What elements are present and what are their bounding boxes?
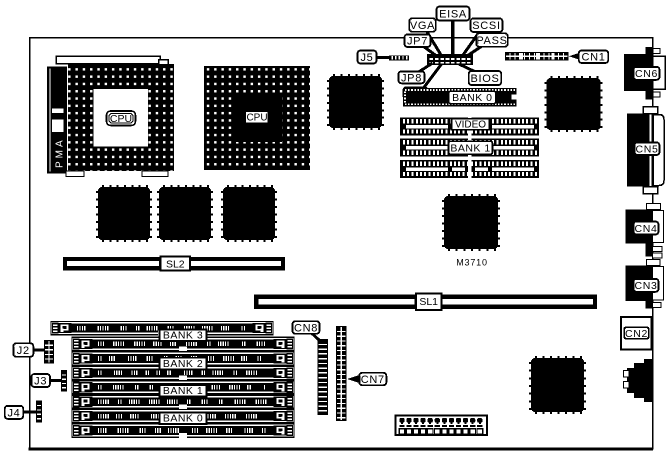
svg-text:VIDEO: VIDEO xyxy=(455,120,486,131)
svg-text:CN7: CN7 xyxy=(361,374,385,386)
svg-text:BANK 3: BANK 3 xyxy=(163,330,203,342)
svg-text:SCSI: SCSI xyxy=(472,20,500,32)
svg-text:BANK 0: BANK 0 xyxy=(452,92,492,104)
svg-text:BANK 2: BANK 2 xyxy=(163,358,203,370)
svg-text:CN6: CN6 xyxy=(635,68,658,80)
svg-text:SL1: SL1 xyxy=(419,296,438,308)
svg-text:PMA: PMA xyxy=(55,137,66,168)
svg-text:SL2: SL2 xyxy=(166,259,185,271)
svg-text:J3: J3 xyxy=(34,375,47,387)
svg-text:PASS: PASS xyxy=(476,35,507,47)
svg-text:CN3: CN3 xyxy=(634,280,657,292)
svg-text:JP7: JP7 xyxy=(407,36,428,48)
svg-text:EISA: EISA xyxy=(439,8,467,20)
svg-text:CN2: CN2 xyxy=(625,328,648,340)
svg-text:CN5: CN5 xyxy=(635,143,658,155)
svg-text:BIOS: BIOS xyxy=(470,73,499,85)
svg-text:JP8: JP8 xyxy=(401,72,422,84)
svg-text:CPU: CPU xyxy=(110,113,132,125)
svg-text:J5: J5 xyxy=(360,52,373,64)
svg-text:BANK 1: BANK 1 xyxy=(163,385,203,397)
svg-text:M3710: M3710 xyxy=(456,258,488,268)
svg-text:BANK 0: BANK 0 xyxy=(163,413,203,425)
svg-text:CN1: CN1 xyxy=(581,52,605,64)
svg-text:CPU: CPU xyxy=(246,113,267,124)
svg-text:CN8: CN8 xyxy=(294,322,318,334)
svg-text:CN4: CN4 xyxy=(634,223,657,235)
svg-text:BANK 1: BANK 1 xyxy=(450,142,490,154)
svg-text:J4: J4 xyxy=(7,407,20,419)
svg-text:J2: J2 xyxy=(17,345,30,357)
svg-text:VGA: VGA xyxy=(410,20,435,32)
